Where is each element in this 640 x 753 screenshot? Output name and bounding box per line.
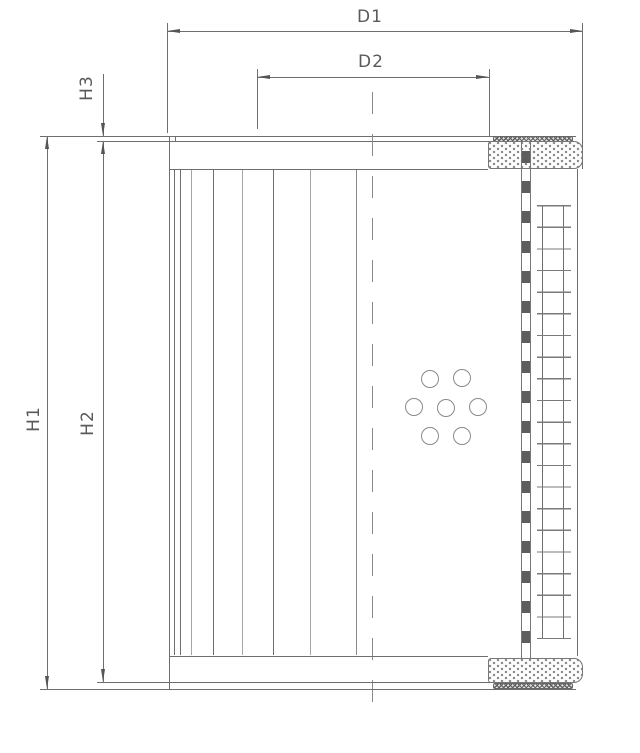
d2-arrowhead-left-icon <box>257 75 270 79</box>
pleat-line <box>273 170 274 655</box>
hole <box>421 370 439 388</box>
d2-extension-line-left <box>257 69 258 129</box>
bottom-end-cap-section <box>488 658 583 683</box>
top-cap-bottom-edge <box>169 169 488 170</box>
hole <box>405 398 423 416</box>
hole <box>421 427 439 445</box>
d2-arrowhead-right-icon <box>476 75 489 79</box>
dimension-h2-label: H2 <box>80 401 96 445</box>
d2-dimension-line <box>257 77 489 78</box>
hole <box>469 398 487 416</box>
hole <box>453 369 471 387</box>
d2-extension-line-right <box>489 69 490 136</box>
bottom-lip-top-line <box>97 682 493 683</box>
spring-coil-rungs <box>537 205 571 639</box>
dimension-d2-label: D2 <box>351 54 391 72</box>
pleat-line <box>191 170 192 655</box>
outer-wall-line <box>577 169 578 656</box>
body-left-edge <box>169 136 170 689</box>
h1-arrowhead-top-icon <box>45 136 49 149</box>
d1-arrowhead-left-icon <box>167 29 180 33</box>
core-tube <box>521 142 531 682</box>
h2-arrowhead-bottom-icon <box>101 669 105 682</box>
h2-dimension-line <box>103 141 104 682</box>
pleat-line <box>180 170 181 655</box>
d1-extension-line-left <box>167 23 168 133</box>
body-bottom-edge <box>40 689 576 690</box>
dimension-d1-label: D1 <box>350 9 390 27</box>
h3-arrowhead-down-icon <box>101 123 105 136</box>
bottom-cap-top-edge <box>169 656 488 657</box>
h2-arrowhead-top-icon <box>101 141 105 154</box>
h1-dimension-line <box>47 136 48 689</box>
hole <box>453 427 471 445</box>
pleat-line <box>174 170 175 655</box>
pleat-line <box>356 170 357 655</box>
hole <box>437 399 455 417</box>
pleat-line <box>242 170 243 655</box>
h1-arrowhead-bottom-icon <box>45 676 49 689</box>
dimension-h3-label: H3 <box>79 66 95 110</box>
dimension-h1-label: H1 <box>26 397 42 441</box>
d1-dimension-line <box>167 31 583 32</box>
pleat-line <box>213 170 214 655</box>
top-end-cap-section <box>488 141 583 169</box>
center-line <box>372 92 373 722</box>
pleat-line <box>310 170 311 655</box>
top-lip-bottom-line <box>97 141 493 142</box>
top-lip-left-end <box>175 136 176 141</box>
technical-drawing-canvas: D1 D2 H1 H3 H2 <box>0 0 640 753</box>
